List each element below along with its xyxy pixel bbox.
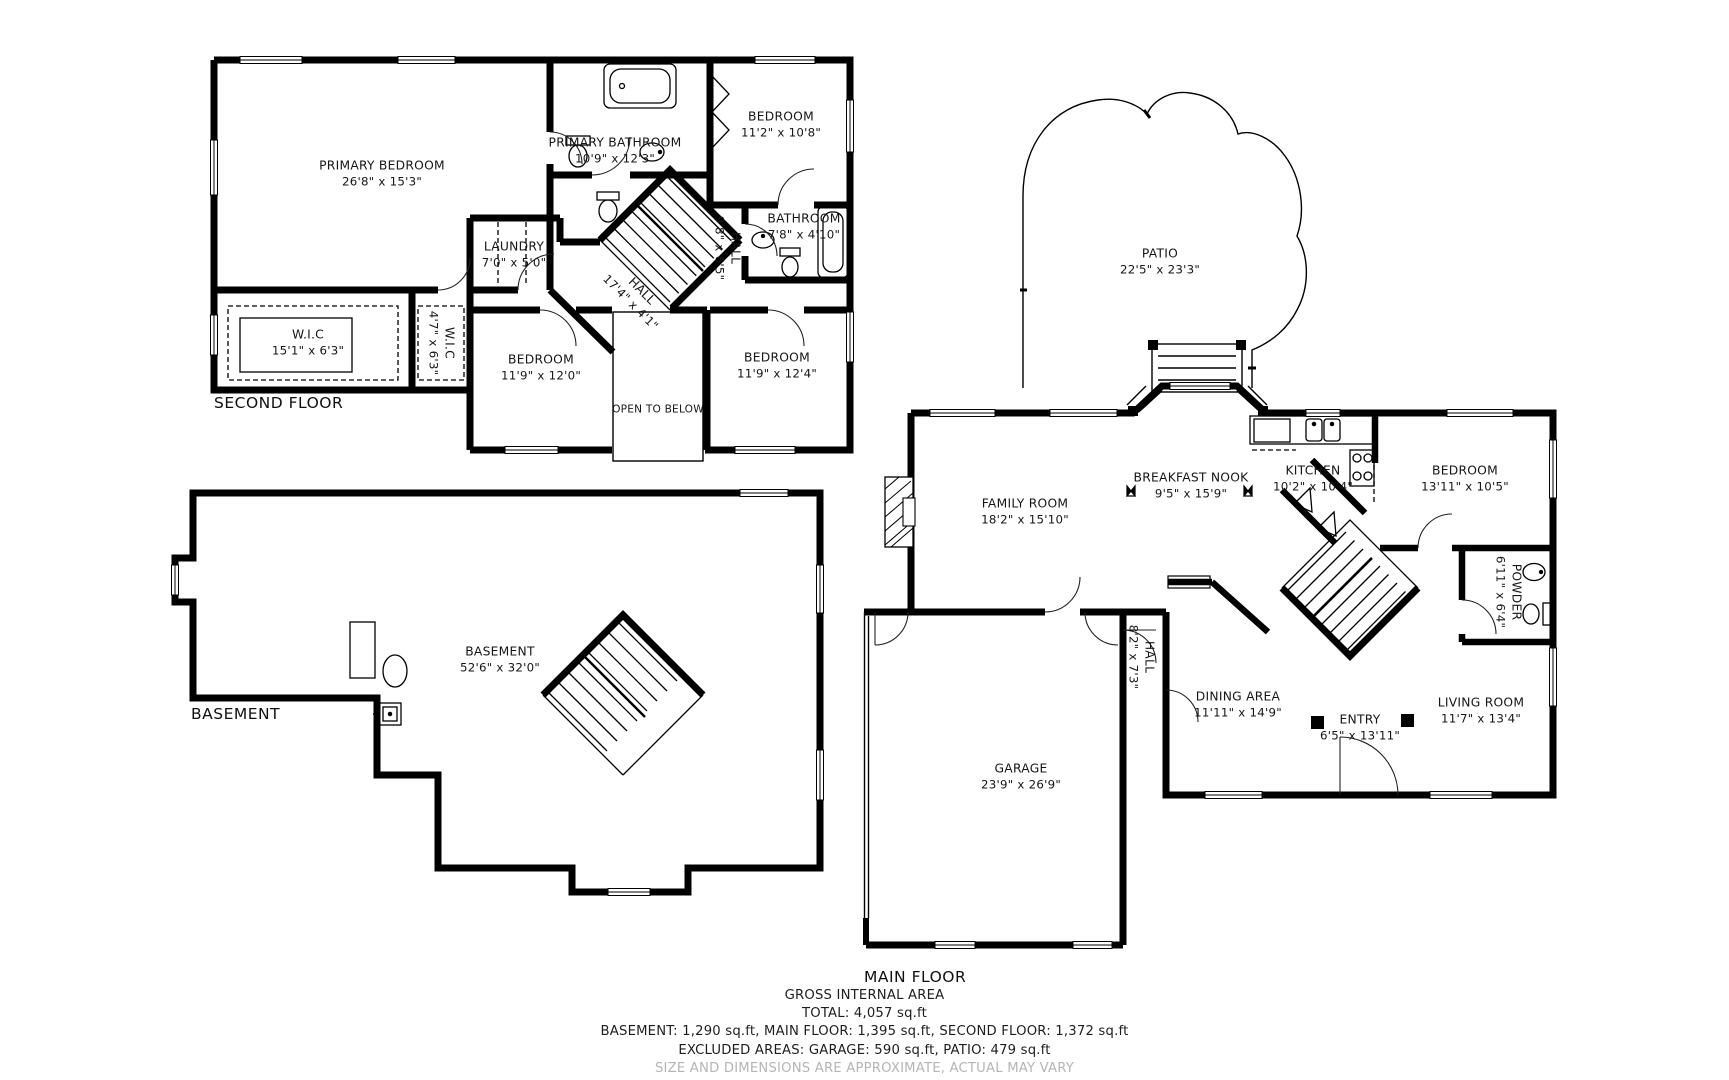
staircase-basement [543,615,703,775]
room-label-basement: BASEMENT52'6" x 32'0" [460,645,540,676]
room-label-bedroom-lower-left: BEDROOM11'9" x 12'0" [501,353,581,384]
room-label-kitchen: KITCHEN10'2" x 10'4" [1273,464,1353,495]
floorplan-page: PRIMARY BEDROOM26'8" x 15'3" PRIMARY BAT… [0,0,1729,1080]
room-label-breakfast-nook: BREAKFAST NOOK9'5" x 15'9" [1134,471,1249,502]
room-label-hall-main: HALL8'2" x 7'3" [1126,625,1157,690]
floorplan-canvas [0,0,1729,1080]
floor-label-main-floor: MAIN FLOOR [864,968,966,986]
fireplace-icon [885,477,915,547]
gross-area-title: GROSS INTERNAL AREA [0,987,1729,1005]
windows-basement [172,490,824,896]
excluded-areas: EXCLUDED AREAS: GARAGE: 590 sq.ft, PATIO… [0,1042,1729,1060]
garage-left-wall [865,612,869,918]
floor-label-second-floor: SECOND FLOOR [214,394,343,412]
room-label-family-room: FAMILY ROOM18'2" x 15'10" [981,497,1069,528]
floor-areas: BASEMENT: 1,290 sq.ft, MAIN FLOOR: 1,395… [0,1023,1729,1041]
room-label-powder: POWDER6'11" x 6'4" [1493,556,1524,628]
room-label-bedroom-lower-right: BEDROOM11'9" x 12'4" [737,351,817,382]
room-label-garage: GARAGE23'9" x 26'9" [981,762,1061,793]
primary-bathtub-icon [604,64,676,108]
basement-fixtures [350,622,407,725]
room-label-primary-bedroom: PRIMARY BEDROOM26'8" x 15'3" [319,159,445,190]
stove-icon [1350,450,1374,486]
patio-ticks [1020,110,1256,368]
room-label-bedroom-upper-right: BEDROOM11'2" x 10'8" [741,110,821,141]
area-summary: GROSS INTERNAL AREA TOTAL: 4,057 sq.ft B… [0,987,1729,1078]
door-arcs-main-floor [875,514,1496,795]
closet-bifold-icon [712,76,729,148]
room-label-patio: PATIO22'5" x 23'3" [1120,247,1200,278]
room-label-bathroom-second: BATHROOM7'8" x 4'10" [767,212,840,243]
room-label-living-room: LIVING ROOM11'7" x 13'4" [1438,696,1524,727]
room-label-wic-large: W.I.C15'1" x 6'3" [272,328,344,359]
room-label-primary-bathroom: PRIMARY BATHROOM10'9" x 12'3" [549,136,682,167]
room-label-hall-vertical: HALL9'8" x 6'5" [712,216,743,281]
room-label-laundry: LAUNDRY7'0" x 5'0" [482,240,547,271]
room-label-bedroom-main: BEDROOM13'11" x 10'5" [1421,464,1509,495]
room-label-wic-small: W.I.C4'7" x 6'3" [426,311,457,376]
staircase-main-floor [1282,520,1418,656]
room-label-dining-area: DINING AREA11'11" x 14'9" [1194,690,1282,721]
total-area: TOTAL: 4,057 sq.ft [0,1005,1729,1023]
hall-toilet-icon [597,192,619,222]
open-to-below-area [613,312,703,461]
floor-label-basement: BASEMENT [191,705,280,723]
bay-window-glazing [1136,383,1263,413]
deck-stairs [1127,340,1268,416]
room-label-entry: ENTRY6'5" x 13'11" [1320,713,1400,744]
disclaimer: SIZE AND DIMENSIONS ARE APPROXIMATE, ACT… [0,1060,1729,1078]
powder-fixtures [1523,564,1552,626]
main-floor-plan [864,92,1557,948]
basement-plan [172,490,824,896]
room-label-open-to-below: OPEN TO BELOW [612,402,704,418]
